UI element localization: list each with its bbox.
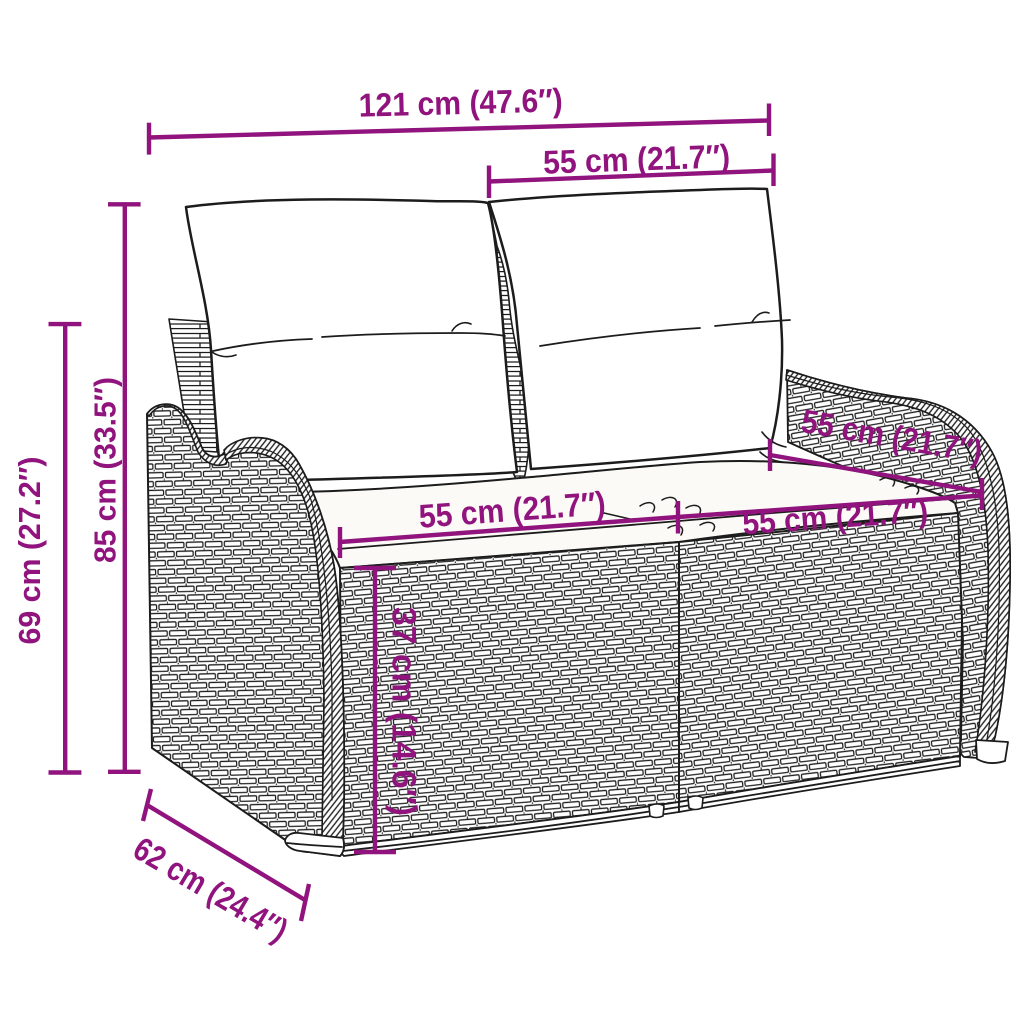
svg-text:121 cm (47.6″): 121 cm (47.6″) [358,81,563,123]
svg-text:69 cm (27.2″): 69 cm (27.2″) [12,457,47,645]
svg-text:55 cm (21.7″): 55 cm (21.7″) [543,137,731,181]
svg-text:85 cm (33.5″): 85 cm (33.5″) [88,377,123,563]
svg-text:37 cm (14.6″): 37 cm (14.6″) [385,607,423,816]
